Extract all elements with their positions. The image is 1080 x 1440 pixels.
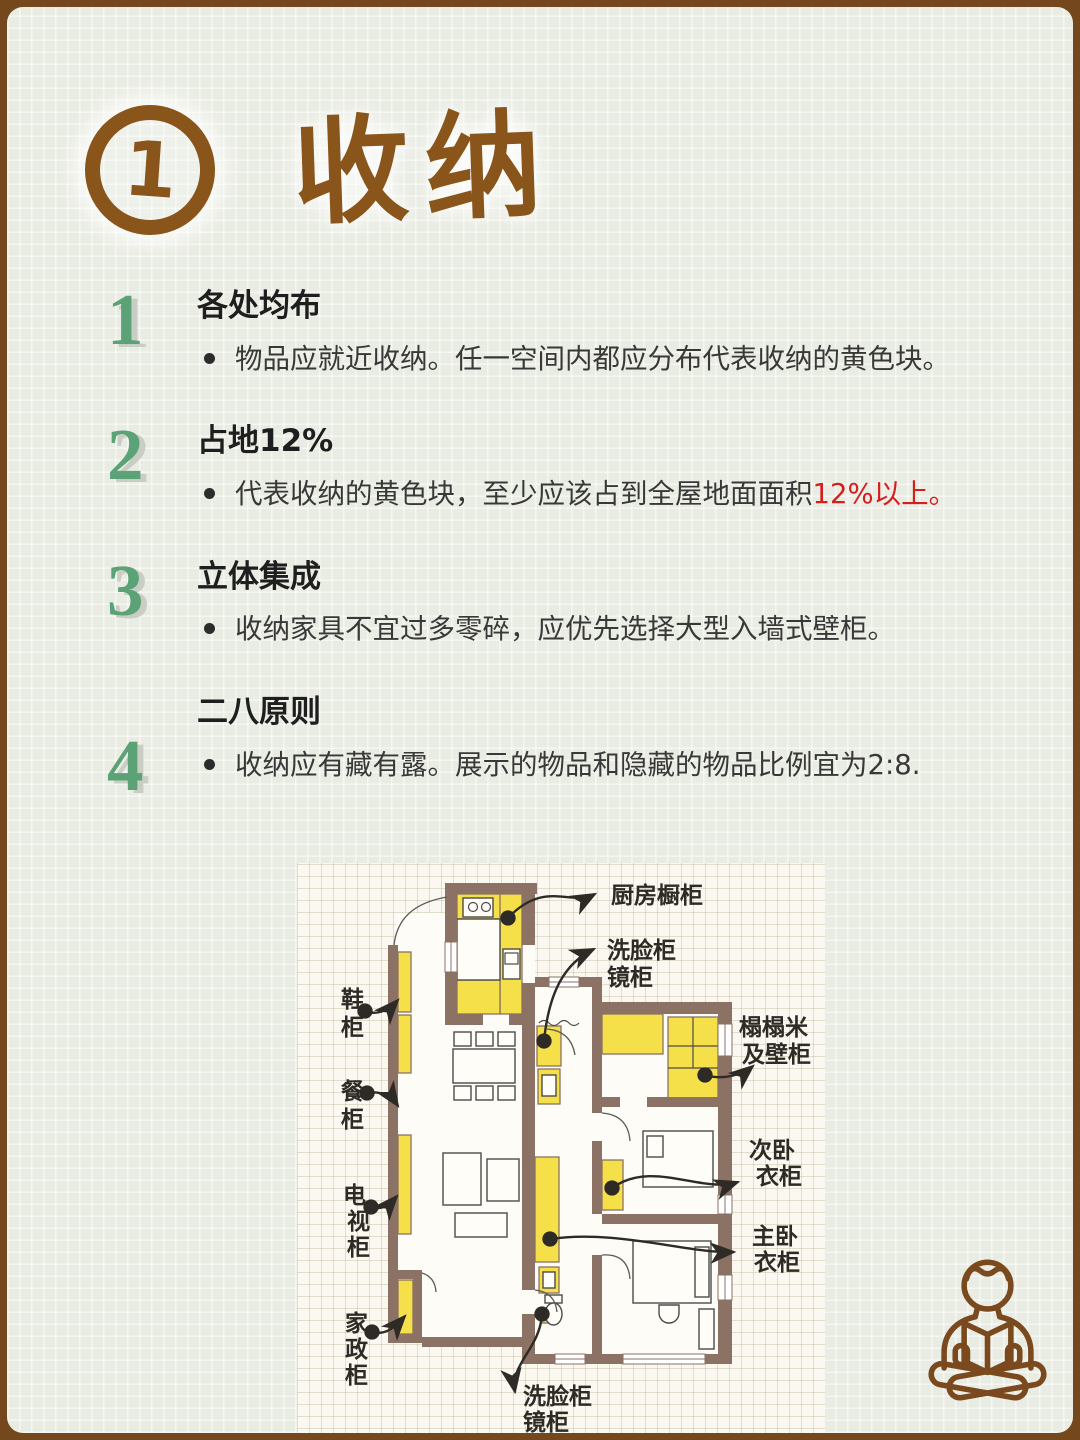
plan-label-tv-1: 电 (343, 1183, 366, 1209)
tip-2-highlight: 12%以上。 (813, 478, 957, 510)
plan-label-tv-3: 柜 (347, 1235, 370, 1261)
floor-plan-paper: 厨房橱柜 洗脸柜 镜柜 鞋 柜 餐 柜 榻榻米 及壁柜 次卧 衣柜 电 视 柜 … (297, 863, 825, 1433)
tip-4-text: 收纳应有藏有露。展示的物品和隐藏的物品比例宜为2:8. (235, 749, 921, 781)
plan-label-housekeeping-2: 政 (345, 1337, 369, 1363)
tip-4: 4 二八原则 收纳应有藏有露。展示的物品和隐藏的物品比例宜为2:8. (107, 695, 1007, 797)
tip-3: 3 立体集成 收纳家具不宜过多零碎，应优先选择大型入墙式壁柜。 (107, 560, 1007, 648)
plan-label-second-bedroom-1: 次卧 (749, 1137, 795, 1164)
plan-label-washbasin-bottom-2: 镜柜 (523, 1409, 569, 1433)
plan-label-washbasin-bottom-1: 洗脸柜 (523, 1383, 592, 1410)
tip-2-number: 2 (107, 424, 197, 512)
floor-plan: 厨房橱柜 洗脸柜 镜柜 鞋 柜 餐 柜 榻榻米 及壁柜 次卧 衣柜 电 视 柜 … (297, 863, 825, 1433)
bullet-dot (204, 759, 215, 770)
tip-1-text: 物品应就近收纳。任一空间内都应分布代表收纳的黄色块。 (235, 343, 950, 375)
person-reading-book-icon (915, 1250, 1060, 1432)
tip-1-heading: 各处均布 (197, 289, 1007, 325)
plan-label-second-bedroom-2: 衣柜 (756, 1163, 802, 1190)
tip-1: 1 各处均布 物品应就近收纳。任一空间内都应分布代表收纳的黄色块。 (107, 289, 1007, 377)
tip-4-bullet: 收纳应有藏有露。展示的物品和隐藏的物品比例宜为2:8. (197, 748, 1007, 784)
tip-1-bullet: 物品应就近收纳。任一空间内都应分布代表收纳的黄色块。 (197, 342, 1007, 378)
plan-label-washbasin-top-2: 镜柜 (607, 964, 653, 991)
tip-3-bullet: 收纳家具不宜过多零碎，应优先选择大型入墙式壁柜。 (197, 612, 1007, 648)
tip-3-text: 收纳家具不宜过多零碎，应优先选择大型入墙式壁柜。 (235, 613, 895, 645)
tip-2-text: 代表收纳的黄色块，至少应该占到全屋地面面积 (235, 478, 813, 510)
plan-label-washbasin-top-1: 洗脸柜 (607, 937, 676, 964)
plan-label-housekeeping-3: 柜 (345, 1363, 368, 1389)
plan-label-tv-2: 视 (347, 1208, 370, 1235)
plan-label-housekeeping-1: 家 (345, 1310, 368, 1337)
tip-2-heading: 占地12% (197, 424, 1007, 460)
plan-label-tatami-1: 榻榻米 (739, 1014, 809, 1041)
bullet-dot (204, 623, 215, 634)
page-background: 1 收纳 1 各处均布 物品应就近收纳。任一空间内都应分布代表收纳的黄色块。 2… (7, 7, 1073, 1433)
tip-2: 2 占地12% 代表收纳的黄色块，至少应该占到全屋地面面积12%以上。 (107, 424, 1007, 512)
page-title: 收纳 (291, 107, 559, 232)
badge-number: 1 (121, 130, 179, 210)
tip-3-heading: 立体集成 (197, 560, 1007, 596)
plan-label-tatami-2: 及壁柜 (742, 1041, 811, 1068)
plan-label-master-bedroom-2: 衣柜 (754, 1249, 800, 1276)
bullet-dot (204, 488, 215, 499)
plan-label-master-bedroom-1: 主卧 (752, 1224, 798, 1250)
tip-2-bullet: 代表收纳的黄色块，至少应该占到全屋地面面积12%以上。 (197, 477, 1007, 513)
tips-list: 1 各处均布 物品应就近收纳。任一空间内都应分布代表收纳的黄色块。 2 占地12… (107, 289, 1007, 844)
tip-3-number: 3 (107, 560, 197, 648)
plan-label-shoe-1: 鞋 (341, 987, 364, 1013)
plan-label-kitchen-cabinet: 厨房橱柜 (611, 882, 703, 909)
bullet-dot (204, 353, 215, 364)
tip-4-heading: 二八原则 (197, 695, 1007, 731)
page-header: 1 收纳 (85, 105, 557, 235)
tip-4-number: 4 (107, 695, 197, 797)
plan-label-dining-2: 柜 (341, 1107, 364, 1133)
title-badge-circle: 1 (85, 105, 215, 235)
plan-label-dining-1: 餐 (341, 1079, 365, 1105)
tip-1-number: 1 (107, 289, 197, 377)
plan-label-shoe-2: 柜 (341, 1015, 364, 1041)
